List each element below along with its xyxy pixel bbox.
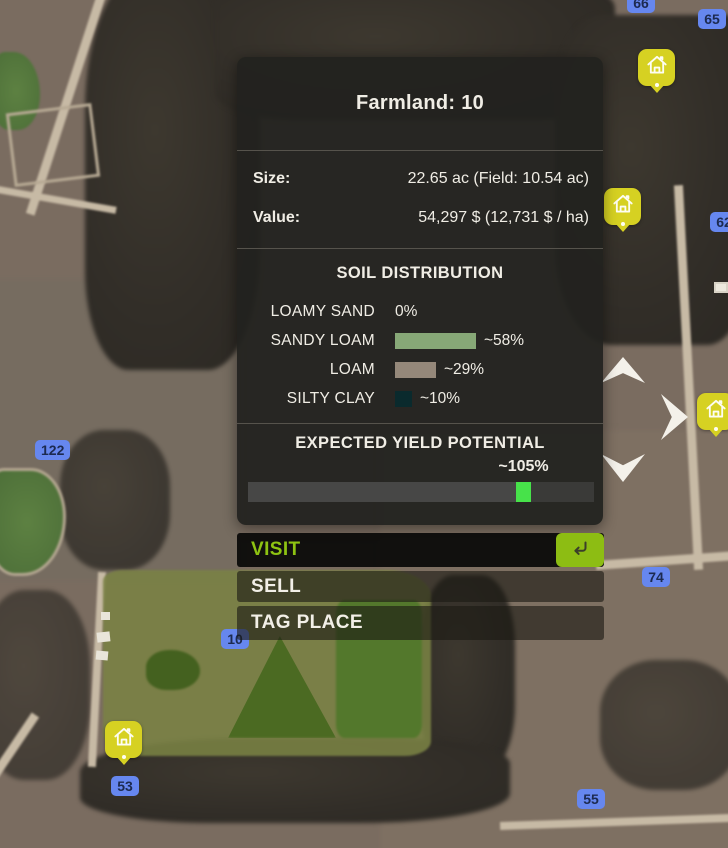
- field-badge-66[interactable]: 66: [627, 0, 655, 13]
- house-marker[interactable]: [638, 49, 675, 86]
- house-icon: [703, 396, 728, 427]
- soil-percent: ~29%: [444, 361, 484, 379]
- tag-place-button[interactable]: TAG PLACE: [237, 606, 604, 640]
- visit-key-button[interactable]: [556, 533, 604, 567]
- divider: [237, 423, 603, 424]
- tag-place-button-label: TAG PLACE: [251, 612, 363, 634]
- soil-percent: ~10%: [420, 390, 460, 408]
- value-label: Value:: [253, 209, 300, 231]
- house-marker[interactable]: [105, 721, 142, 758]
- visit-button[interactable]: VISIT: [237, 533, 604, 567]
- soil-row-silty-clay: SILTY CLAY ~10%: [237, 390, 460, 408]
- house-icon: [610, 191, 636, 222]
- value-row: Value: 54,297 $ (12,731 $ / ha): [253, 209, 589, 231]
- soil-row-loamy-sand: LOAMY SAND 0%: [237, 303, 417, 321]
- field-badge-55[interactable]: 55: [577, 789, 605, 809]
- field-badge-62[interactable]: 62: [710, 212, 728, 232]
- sell-button[interactable]: SELL: [237, 571, 604, 602]
- divider: [237, 248, 603, 249]
- soil-label: LOAM: [237, 361, 375, 379]
- enter-return-icon: [569, 537, 591, 564]
- soil-bar: [395, 391, 412, 407]
- soil-label: LOAMY SAND: [237, 303, 375, 321]
- soil-percent: 0%: [395, 303, 417, 321]
- field-badge-74[interactable]: 74: [642, 567, 670, 587]
- house-marker[interactable]: [604, 188, 641, 225]
- soil-distribution-title: SOIL DISTRIBUTION: [237, 264, 603, 283]
- soil-label: SILTY CLAY: [237, 390, 375, 408]
- field-badge-53[interactable]: 53: [111, 776, 139, 796]
- soil-bar: [395, 362, 436, 378]
- size-value: 22.65 ac (Field: 10.54 ac): [408, 170, 589, 192]
- field-badge-122[interactable]: 122: [35, 440, 70, 460]
- yield-potential-value: ~105%: [479, 458, 569, 476]
- divider: [237, 150, 603, 151]
- yield-bar-marker: [516, 482, 531, 502]
- map-trees: [60, 430, 170, 570]
- house-icon: [644, 52, 670, 83]
- panel-title: Farmland: 10: [237, 57, 603, 150]
- visit-button-label: VISIT: [251, 539, 301, 561]
- soil-bar: [395, 333, 476, 349]
- size-row: Size: 22.65 ac (Field: 10.54 ac): [253, 170, 589, 192]
- map-building: [714, 282, 728, 293]
- map-screen: 66 65 62 122 74 10 53 55 Farmland: 10: [0, 0, 728, 848]
- soil-row-sandy-loam: SANDY LOAM ~58%: [237, 332, 524, 350]
- yield-potential-bar: [248, 482, 594, 502]
- size-label: Size:: [253, 170, 290, 192]
- farmland-info-panel: Farmland: 10 Size: 22.65 ac (Field: 10.5…: [237, 57, 603, 525]
- map-building: [97, 631, 111, 642]
- value-value: 54,297 $ (12,731 $ / ha): [418, 209, 589, 231]
- soil-label: SANDY LOAM: [237, 332, 375, 350]
- yield-bar-fill: [248, 482, 516, 502]
- yield-potential-title: EXPECTED YIELD POTENTIAL: [237, 434, 603, 453]
- soil-row-loam: LOAM ~29%: [237, 361, 484, 379]
- map-building: [96, 650, 109, 660]
- sell-button-label: SELL: [251, 576, 301, 598]
- field-badge-65[interactable]: 65: [698, 9, 726, 29]
- map-building: [101, 612, 110, 620]
- soil-percent: ~58%: [484, 332, 524, 350]
- house-icon: [111, 724, 137, 755]
- map-trees: [600, 660, 728, 790]
- map-road: [6, 103, 100, 187]
- selected-farmland-dark-patch: [146, 650, 200, 690]
- house-marker[interactable]: [697, 393, 728, 430]
